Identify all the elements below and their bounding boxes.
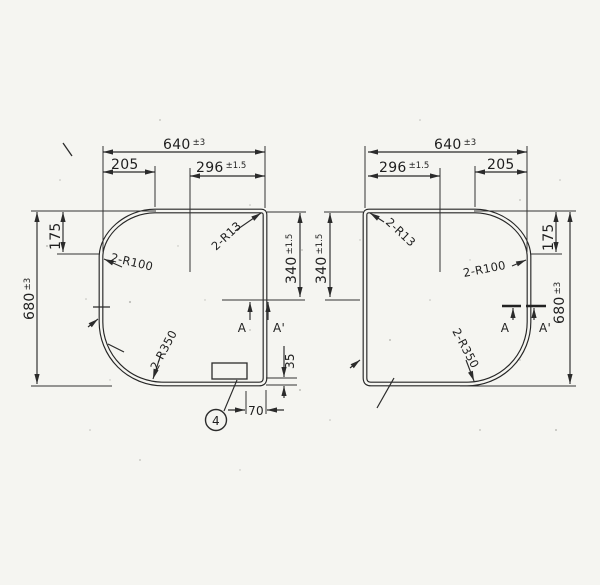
panel-outline-left <box>101 211 265 384</box>
dim-640-label: 640±3 <box>434 137 476 153</box>
dim-175-label: 175 <box>541 223 557 251</box>
dim-640-label: 640±3 <box>163 137 205 153</box>
dim-35-label: 35 <box>283 353 297 369</box>
radius-leaders-right <box>370 213 526 381</box>
dim-296-label: 296±1.5 <box>379 160 429 176</box>
balloon-number: 4 <box>212 414 220 428</box>
leader-r13 <box>370 213 384 222</box>
balloon-callout: 4 <box>206 380 238 431</box>
radius-r100-label: 2-R100 <box>109 250 154 273</box>
radius-r350-label: 2-R350 <box>147 328 180 373</box>
dim-340-label: 340±1.5 <box>284 234 300 284</box>
section-a-label: A <box>238 321 247 335</box>
section-a-prime-label: A' <box>539 321 551 335</box>
panel-outline-right <box>365 211 529 384</box>
dim-296-label: 296±1.5 <box>196 160 246 176</box>
radius-r13-label: 2-R13 <box>208 219 244 254</box>
edge-pointer-arrow <box>88 319 98 327</box>
left-view: 4 640±3 205 296±1.5 680±3 175 340±1.5 35… <box>22 137 306 431</box>
dim-340-label: 340±1.5 <box>314 234 330 284</box>
panel-outline-left-inner <box>101 211 265 384</box>
scanned-drawing-sheet: 4 640±3 205 296±1.5 680±3 175 340±1.5 35… <box>0 0 600 585</box>
stray-mark <box>63 143 72 156</box>
leader-r100 <box>512 260 526 266</box>
edge-pointer-arrow <box>350 360 360 368</box>
handle-recess <box>212 363 247 379</box>
technical-drawing-canvas: 4 640±3 205 296±1.5 680±3 175 340±1.5 35… <box>0 0 600 585</box>
radius-r100-label: 2-R100 <box>462 258 507 280</box>
dimension-lines-left <box>37 152 300 410</box>
section-a-label: A <box>501 321 510 335</box>
dim-205-label: 205 <box>111 157 139 173</box>
dim-70-label: 70 <box>248 404 264 418</box>
panel-outline-right-inner <box>365 211 529 384</box>
dim-205-label: 205 <box>487 157 515 173</box>
radius-r13-label: 2-R13 <box>383 215 419 250</box>
extension-lines-right <box>324 146 576 386</box>
right-view: 640±3 205 296±1.5 680±3 175 340±1.5 2-R1… <box>314 137 576 408</box>
dim-175-label: 175 <box>48 222 64 250</box>
dim-680-label: 680±3 <box>552 282 568 324</box>
dim-680-label: 680±3 <box>22 278 38 320</box>
section-a-prime-label: A' <box>273 321 285 335</box>
radius-r350-label: 2-R350 <box>449 326 482 371</box>
radius-leaders-left <box>104 213 261 379</box>
